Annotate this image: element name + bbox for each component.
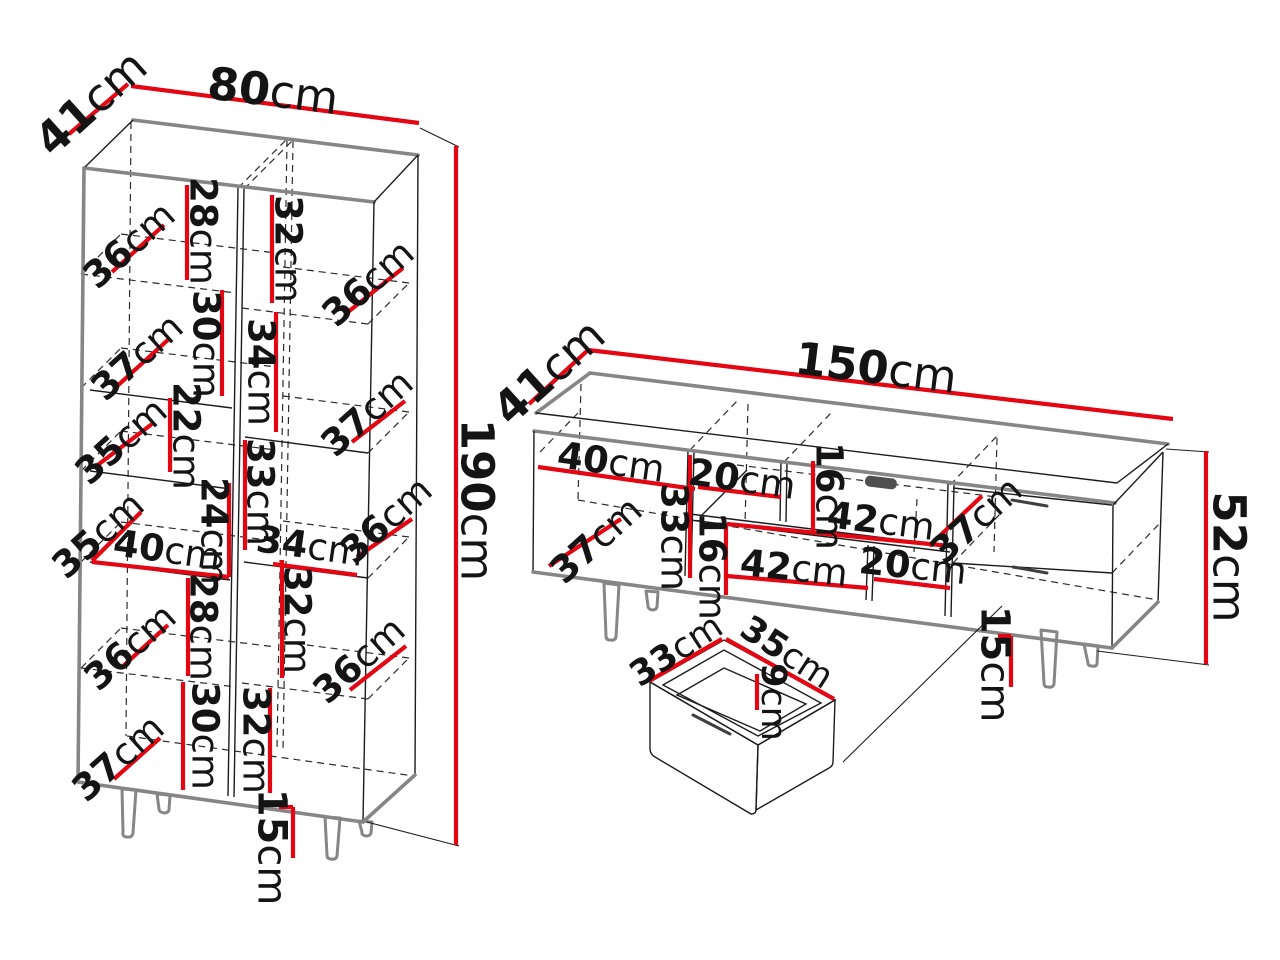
tv-back-left-leg [646,591,658,610]
extension-line [420,128,459,147]
cabinet-front-right-leg [325,817,340,859]
tv-leg-height-label: 15cm [971,606,1017,723]
tv-width-label: 150cm [792,332,960,404]
furniture-dimension-diagram: 41cm 80cm 190cm 36cm 28cm 32cm 36cm 37cm… [0,0,1280,960]
dim-label: 30cm [183,682,226,790]
tv-height-label: 52cm [1203,491,1256,622]
extension-line [1097,651,1209,665]
tv-front-left-leg [604,583,619,640]
diagram-canvas: 41cm 80cm 190cm 36cm 28cm 32cm 36cm 37cm… [0,0,1280,960]
extension-line [367,822,459,846]
dim-label: 28cm [181,573,224,681]
cabinet-front-left-leg [122,789,136,837]
dim-label: 32cm [234,686,277,794]
drawer-height-label: 9cm [753,663,793,741]
dim-label: 32cm [266,195,309,303]
dim-label: 34cm [239,318,282,426]
cabinet-width-label: 80cm [205,57,342,126]
dim-label: 32cm [275,566,318,674]
cabinet-back-left-leg [157,794,170,813]
cabinet-height-label: 190cm [451,419,504,582]
dim-label: 16cm [690,512,733,620]
cabinet-leg-height-label: 15cm [248,789,294,906]
extension-line [1166,449,1209,452]
dim-label: 33cm [652,483,695,591]
dim-label: 22cm [164,382,207,490]
dim-label: 28cm [181,177,224,285]
